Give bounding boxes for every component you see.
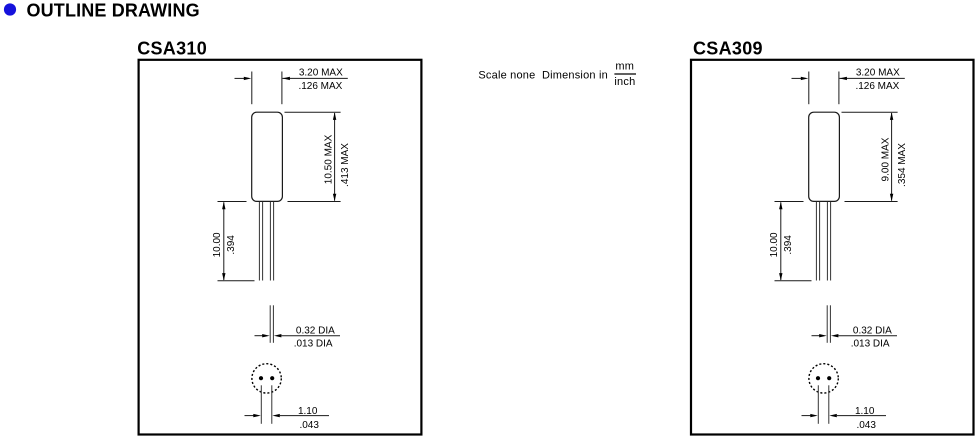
svg-text:10.50 MAX: 10.50 MAX [324, 134, 335, 184]
svg-text:.013 DIA: .013 DIA [294, 339, 333, 350]
svg-text:1.10: 1.10 [855, 406, 875, 417]
svg-text:CSA310: CSA310 [137, 38, 207, 58]
svg-text:CSA309: CSA309 [693, 38, 763, 58]
svg-text:.413 MAX: .413 MAX [340, 143, 351, 187]
svg-text:.354 MAX: .354 MAX [897, 143, 908, 187]
svg-text:OUTLINE DRAWING: OUTLINE DRAWING [27, 1, 200, 21]
svg-text:.043: .043 [856, 420, 876, 431]
svg-text:mm: mm [615, 61, 634, 73]
svg-text:.013 DIA: .013 DIA [851, 339, 890, 350]
svg-text:.394: .394 [226, 235, 237, 255]
svg-text:10.00: 10.00 [212, 232, 223, 257]
svg-text:inch: inch [614, 76, 635, 88]
svg-text:.126 MAX: .126 MAX [298, 81, 342, 92]
svg-text:1.10: 1.10 [298, 406, 318, 417]
svg-text:9.00 MAX: 9.00 MAX [881, 137, 892, 181]
svg-text:10.00: 10.00 [769, 232, 780, 257]
svg-text:3.20 MAX: 3.20 MAX [856, 67, 900, 78]
svg-text:3.20 MAX: 3.20 MAX [299, 67, 343, 78]
svg-text:.043: .043 [299, 420, 319, 431]
svg-text:.394: .394 [783, 235, 794, 255]
svg-text:0.32 DIA: 0.32 DIA [296, 325, 335, 336]
svg-text:0.32 DIA: 0.32 DIA [853, 325, 892, 336]
svg-text:Scale none Dimension in: Scale none Dimension in [478, 69, 608, 81]
svg-text:.126 MAX: .126 MAX [855, 81, 899, 92]
